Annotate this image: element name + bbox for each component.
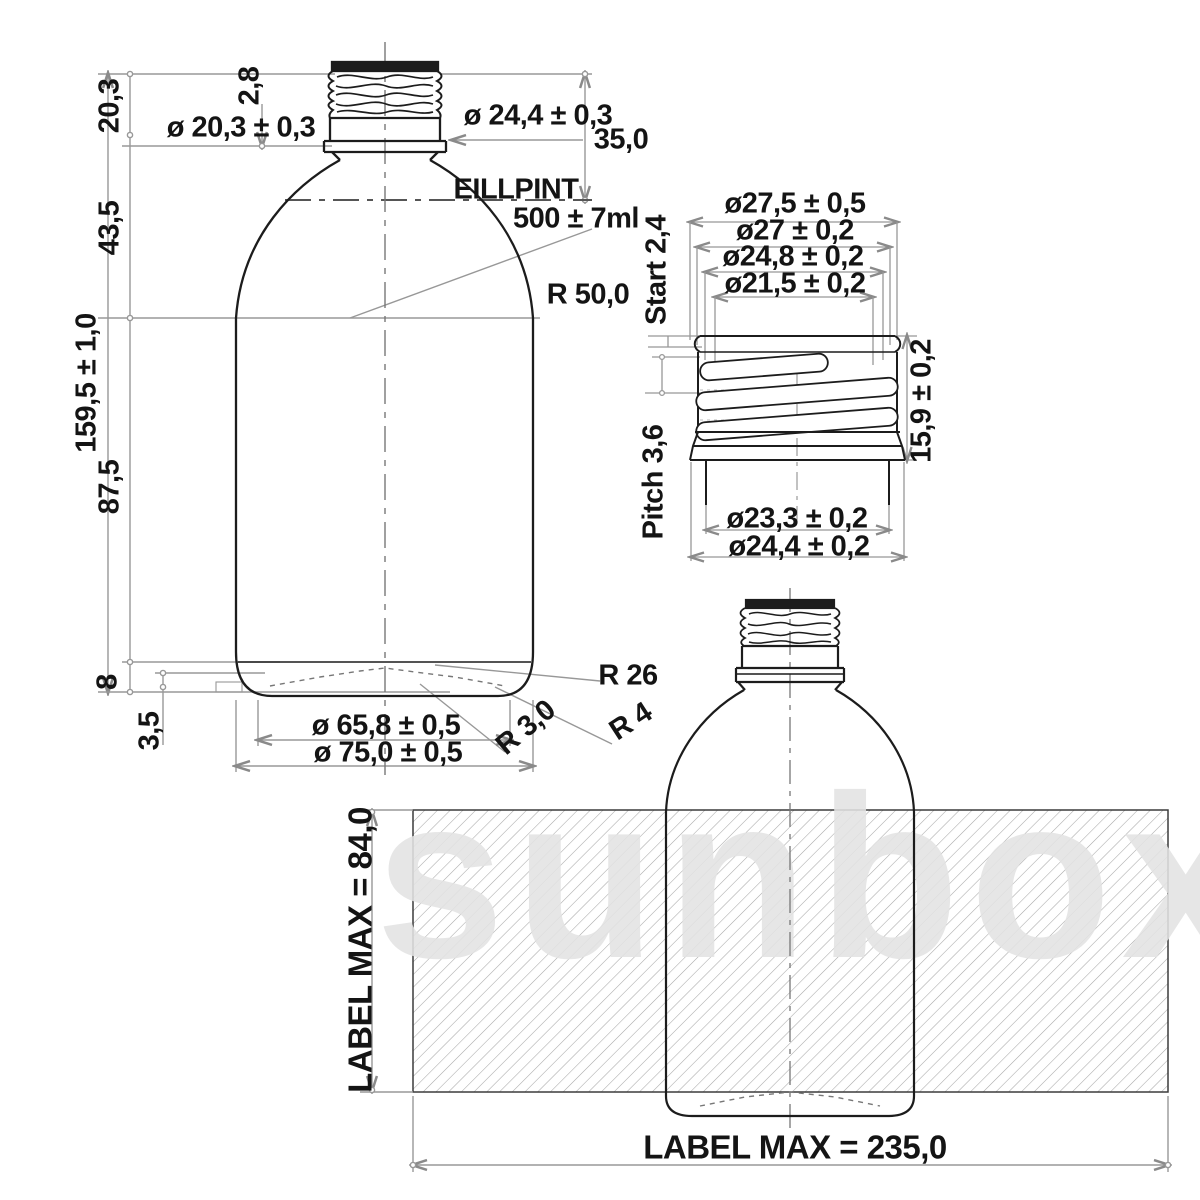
dim-label-base-dia-outer: ø 75,0 ± 0,5 [314,739,463,768]
radius-label-26: R 26 [598,662,657,691]
fill-point-title: EILLPINT [454,176,579,205]
dim-label-neck-height: 35,0 [594,126,648,155]
dim-label-base-height: 8 [94,674,123,690]
dim-label-neck-bore: ø 20,3 ± 0,3 [167,114,316,143]
dim-label-shoulder-height: 43,5 [96,201,125,255]
label-max-height: LABEL MAX = 84,0 [344,807,377,1093]
detail-dim-bore-dia: ø21,5 ± 0,2 [724,270,865,299]
dim-label-body-height: 87,5 [96,460,125,514]
dim-label-neck-finish-height: 20,3 [96,79,125,133]
detail-dim-flange-dia: ø24,4 ± 0,2 [728,533,869,562]
dim-label-total-height: 159,5 ± 1,0 [73,313,102,452]
detail-dim-under-flange-dia: ø23,3 ± 0,2 [726,505,867,534]
radius-label-4: R 4 [605,698,657,746]
detail-dim-thread-start: Start 2,4 [643,215,672,325]
technical-drawing-page: sunbox [0,0,1200,1200]
fill-point-volume: 500 ± 7ml [513,205,639,234]
dim-label-heel-height: 3,5 [136,712,165,751]
dim-label-neck-od: ø 24,4 ± 0,3 [464,102,613,131]
radius-label-3: R 3,0 [491,695,561,760]
detail-dim-finish-height: 15,9 ± 0,2 [908,339,937,463]
dim-label-thread-depth: 2,8 [236,67,265,106]
detail-dim-thread-pitch: Pitch 3,6 [640,425,669,540]
label-max-width: LABEL MAX = 235,0 [643,1131,947,1164]
radius-label-shoulder: R 50,0 [547,281,629,310]
annotation-layer: 20,3 43,5 159,5 ± 1,0 87,5 8 3,5 ø 20,3 … [0,0,1200,1200]
